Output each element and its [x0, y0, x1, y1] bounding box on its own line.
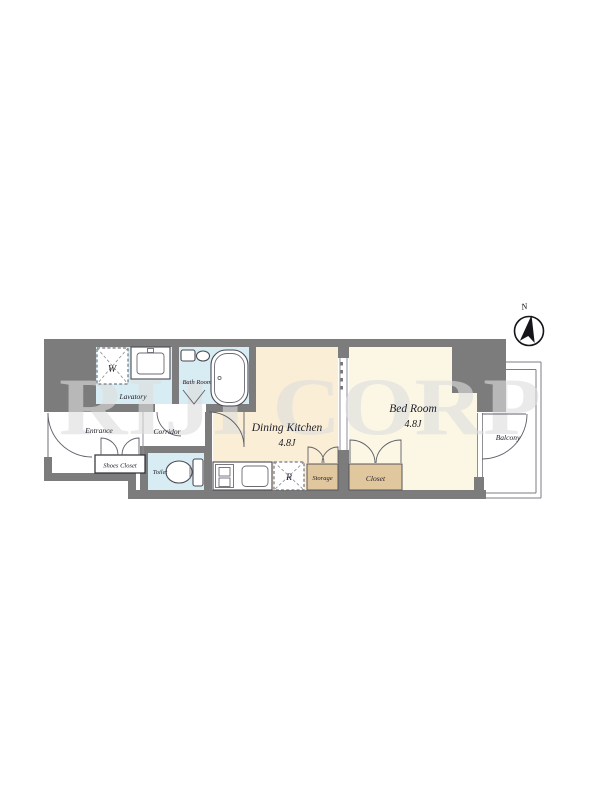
refrigerator-symbol-label: R: [285, 473, 292, 483]
bathtub: [211, 350, 248, 406]
dining-kitchen-label: Dining Kitchen: [251, 422, 323, 434]
toilet-label: Toilet: [153, 469, 168, 476]
wall-segment: [128, 490, 486, 499]
kitchen-counter: [213, 462, 272, 490]
storage-label: Storage: [312, 475, 332, 482]
corridor-label: Corridor: [153, 427, 180, 436]
compass-north-icon: N: [515, 301, 544, 346]
bed-room-label: Bed Room: [389, 403, 437, 415]
wall-segment: [338, 450, 349, 492]
entrance-label: Entrance: [84, 426, 113, 435]
wall-segment: [474, 477, 484, 492]
closet-label: Closet: [366, 474, 386, 483]
bath-vanity: [181, 350, 210, 361]
shoes-closet-label: Shoes Closet: [103, 463, 137, 470]
bed-room-size-label: 4.8J: [405, 419, 423, 430]
lavatory-label: Lavatory: [118, 392, 147, 401]
wall-segment: [338, 347, 349, 358]
dining-kitchen-size-label: 4.8J: [279, 438, 297, 449]
wall-segment: [44, 473, 136, 481]
bath-room-label: Bath Room: [182, 379, 211, 386]
balcony-label: Balcony: [496, 433, 521, 442]
wall-segment: [44, 339, 506, 347]
compass-north-label: N: [519, 301, 529, 312]
lavatory-sink: [131, 347, 170, 379]
floorplan-image: RIJI CORP: [0, 0, 600, 800]
